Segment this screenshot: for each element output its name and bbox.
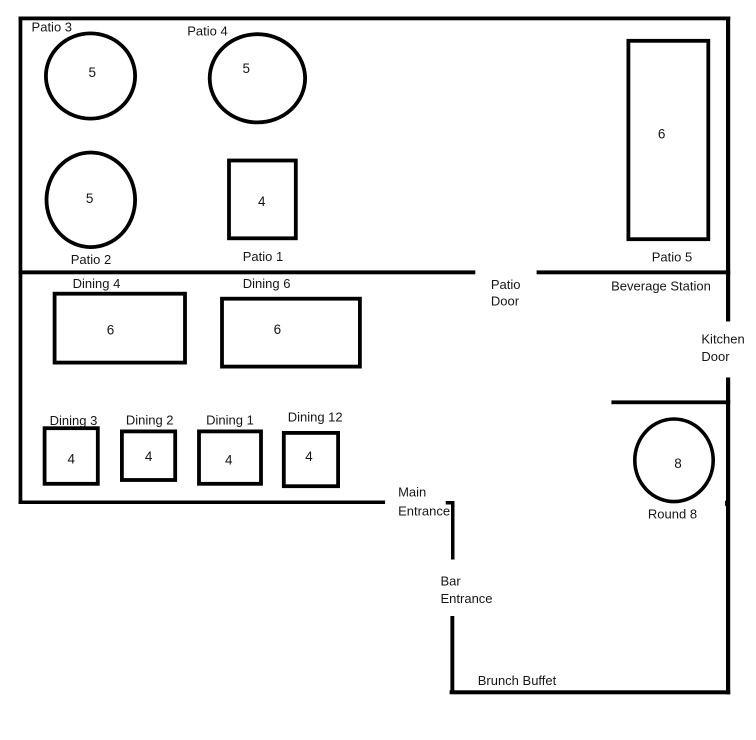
svg-text:Patio: Patio xyxy=(491,277,521,292)
svg-text:Dining 3: Dining 3 xyxy=(50,413,98,428)
svg-text:Entrance: Entrance xyxy=(398,503,450,518)
svg-text:Door: Door xyxy=(701,349,730,364)
svg-text:Dining 2: Dining 2 xyxy=(126,412,174,427)
svg-text:4: 4 xyxy=(305,449,313,464)
svg-text:Patio 4: Patio 4 xyxy=(187,24,227,39)
svg-text:Dining 6: Dining 6 xyxy=(243,276,291,291)
svg-text:5: 5 xyxy=(89,65,97,80)
svg-text:Main: Main xyxy=(398,485,426,500)
svg-text:Patio 2: Patio 2 xyxy=(71,252,111,267)
svg-text:Dining 4: Dining 4 xyxy=(73,276,121,291)
svg-text:4: 4 xyxy=(225,453,233,468)
svg-text:6: 6 xyxy=(107,323,115,338)
svg-text:Kitchen: Kitchen xyxy=(701,332,744,347)
svg-text:Round 8: Round 8 xyxy=(648,507,697,522)
svg-text:Bar: Bar xyxy=(441,574,462,589)
svg-text:6: 6 xyxy=(274,322,282,337)
svg-text:4: 4 xyxy=(258,194,266,209)
svg-text:4: 4 xyxy=(145,449,153,464)
svg-text:Patio 5: Patio 5 xyxy=(652,249,692,264)
svg-text:Brunch Buffet: Brunch Buffet xyxy=(478,673,557,688)
svg-text:Dining 1: Dining 1 xyxy=(206,412,254,427)
svg-text:Beverage Station: Beverage Station xyxy=(611,279,711,294)
svg-text:6: 6 xyxy=(658,127,666,142)
svg-text:5: 5 xyxy=(242,61,250,76)
svg-text:4: 4 xyxy=(67,452,75,467)
svg-text:5: 5 xyxy=(86,191,94,206)
svg-text:Patio 1: Patio 1 xyxy=(243,249,283,264)
svg-text:Entrance: Entrance xyxy=(441,591,493,606)
svg-text:Patio 3: Patio 3 xyxy=(32,19,72,34)
svg-text:Door: Door xyxy=(491,293,520,308)
svg-text:Dining 12: Dining 12 xyxy=(288,409,343,424)
svg-text:8: 8 xyxy=(674,456,682,471)
